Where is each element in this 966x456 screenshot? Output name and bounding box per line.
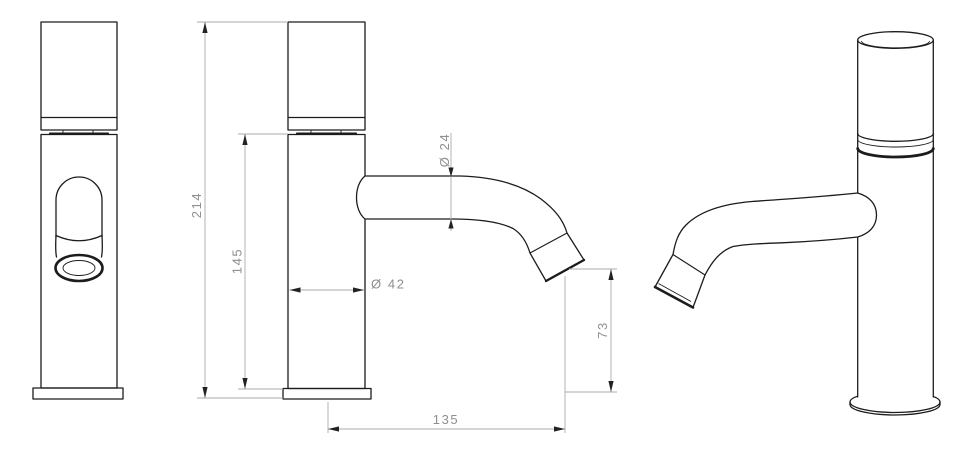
dimension-total-height: 214 — [189, 22, 288, 398]
side-spout-outline — [357, 176, 585, 281]
front-body — [41, 135, 117, 389]
dimension-label-body-height: 145 — [230, 248, 245, 275]
dimension-label-body-diameter: Ø 42 — [371, 277, 406, 292]
dimension-outlet-height: 73 — [565, 269, 617, 392]
side-spout — [357, 176, 585, 281]
dimension-body-diameter: Ø 42 — [290, 277, 406, 292]
dimension-body-height: 145 — [230, 134, 289, 389]
front-handle — [41, 22, 117, 130]
front-spout-tube — [56, 177, 102, 237]
dimension-label-total-height: 214 — [189, 192, 204, 219]
side-base-flange — [283, 389, 371, 400]
side-view — [283, 22, 584, 399]
persp-spout — [655, 193, 877, 308]
dimension-label-spout-diameter: Ø 24 — [437, 133, 452, 168]
drawing-canvas: 214 145 Ø 24 Ø 42 73 135 — [0, 0, 966, 456]
dimension-spout-reach: 135 — [328, 276, 565, 433]
front-base-flange — [33, 388, 123, 399]
front-outlet-inner — [63, 261, 95, 276]
front-spout-ring-line — [56, 236, 102, 241]
side-handle — [288, 22, 365, 130]
persp-spout-outline — [655, 193, 877, 308]
arrow-up — [448, 219, 453, 229]
front-view — [33, 22, 123, 399]
side-body — [288, 135, 365, 389]
perspective-view — [655, 32, 940, 415]
technical-drawing: 214 145 Ø 24 Ø 42 73 135 — [0, 0, 966, 456]
dimension-label-spout-reach: 135 — [433, 412, 460, 427]
side-handle-outline — [288, 22, 365, 130]
front-spout — [56, 177, 103, 281]
dimension-label-outlet-height: 73 — [595, 321, 610, 339]
front-handle-outline — [41, 22, 117, 130]
